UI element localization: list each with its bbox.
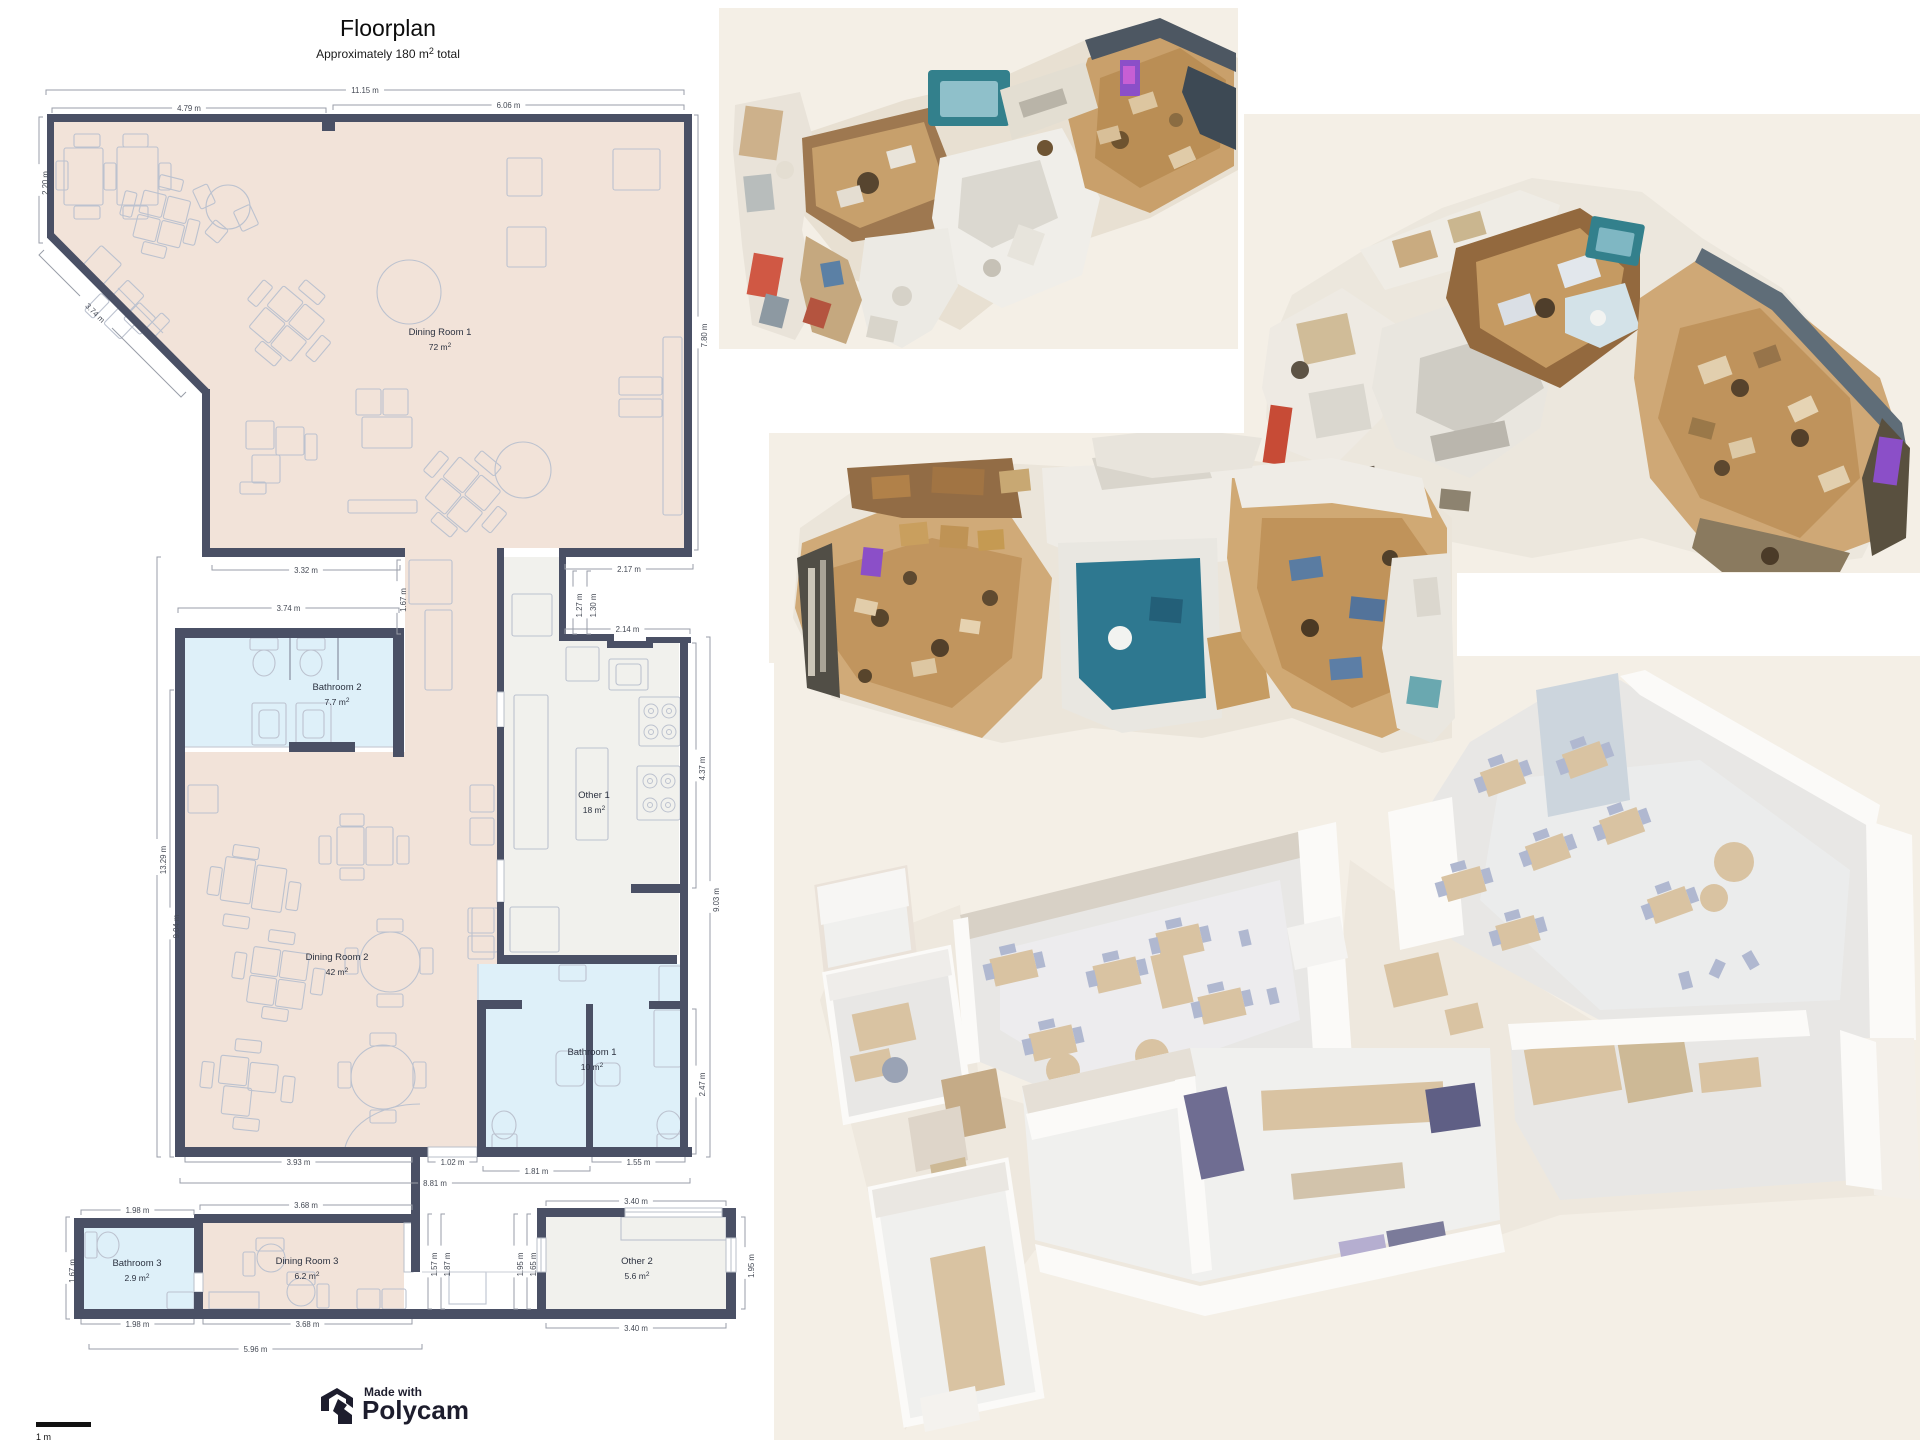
svg-text:3.40 m: 3.40 m bbox=[624, 1324, 648, 1333]
svg-text:6.06 m: 6.06 m bbox=[497, 101, 521, 110]
svg-text:1.98 m: 1.98 m bbox=[126, 1320, 150, 1329]
svg-text:Bathroom 1: Bathroom 1 bbox=[567, 1047, 616, 1058]
svg-text:11.15 m: 11.15 m bbox=[351, 86, 379, 95]
svg-text:3.32 m: 3.32 m bbox=[294, 566, 318, 575]
svg-text:2.17 m: 2.17 m bbox=[617, 565, 641, 574]
svg-text:Floorplan: Floorplan bbox=[340, 15, 436, 41]
svg-text:Approximately 180 m2 total: Approximately 180 m2 total bbox=[316, 46, 460, 61]
svg-text:1.02 m: 1.02 m bbox=[441, 1158, 465, 1167]
svg-text:1 m: 1 m bbox=[36, 1432, 51, 1440]
svg-text:Other 1: Other 1 bbox=[578, 790, 610, 801]
svg-text:1.95 m: 1.95 m bbox=[747, 1254, 756, 1278]
svg-text:4.79 m: 4.79 m bbox=[177, 104, 201, 113]
svg-text:1.67 m: 1.67 m bbox=[399, 588, 408, 612]
svg-text:1.27 m: 1.27 m bbox=[575, 594, 584, 618]
svg-text:1.98 m: 1.98 m bbox=[126, 1206, 150, 1215]
svg-text:9.04 m: 9.04 m bbox=[172, 915, 181, 939]
svg-text:2.14 m: 2.14 m bbox=[616, 625, 640, 634]
svg-text:1.65 m: 1.65 m bbox=[529, 1253, 538, 1277]
svg-text:7.80 m: 7.80 m bbox=[700, 324, 709, 348]
svg-text:3.74 m: 3.74 m bbox=[277, 604, 301, 613]
svg-text:1.55 m: 1.55 m bbox=[627, 1158, 651, 1167]
svg-text:8.81 m: 8.81 m bbox=[423, 1179, 447, 1188]
svg-text:3.40 m: 3.40 m bbox=[624, 1197, 648, 1206]
svg-text:1.81 m: 1.81 m bbox=[525, 1167, 549, 1176]
svg-text:3.93 m: 3.93 m bbox=[287, 1158, 311, 1167]
svg-text:5.96 m: 5.96 m bbox=[244, 1345, 268, 1354]
svg-text:Bathroom 2: Bathroom 2 bbox=[312, 682, 361, 693]
svg-text:13.29 m: 13.29 m bbox=[159, 846, 168, 874]
svg-text:1.87 m: 1.87 m bbox=[443, 1253, 452, 1277]
svg-text:4.37 m: 4.37 m bbox=[698, 757, 707, 781]
svg-text:3.68 m: 3.68 m bbox=[296, 1320, 320, 1329]
svg-text:Dining Room 3: Dining Room 3 bbox=[276, 1256, 339, 1267]
svg-text:2.20 m: 2.20 m bbox=[41, 171, 50, 195]
svg-text:9.03 m: 9.03 m bbox=[712, 888, 721, 912]
svg-text:1.67 m: 1.67 m bbox=[68, 1259, 77, 1283]
svg-text:Dining Room 2: Dining Room 2 bbox=[306, 952, 369, 963]
svg-text:3.68 m: 3.68 m bbox=[294, 1201, 318, 1210]
svg-text:1.95 m: 1.95 m bbox=[516, 1253, 525, 1277]
svg-text:Polycam: Polycam bbox=[362, 1395, 469, 1425]
svg-text:1.57 m: 1.57 m bbox=[430, 1253, 439, 1277]
svg-text:Other 2: Other 2 bbox=[621, 1256, 653, 1267]
svg-text:1.30 m: 1.30 m bbox=[589, 594, 598, 618]
svg-text:Bathroom 3: Bathroom 3 bbox=[112, 1258, 161, 1269]
svg-text:2.47 m: 2.47 m bbox=[698, 1073, 707, 1097]
svg-text:Dining Room 1: Dining Room 1 bbox=[409, 327, 472, 338]
